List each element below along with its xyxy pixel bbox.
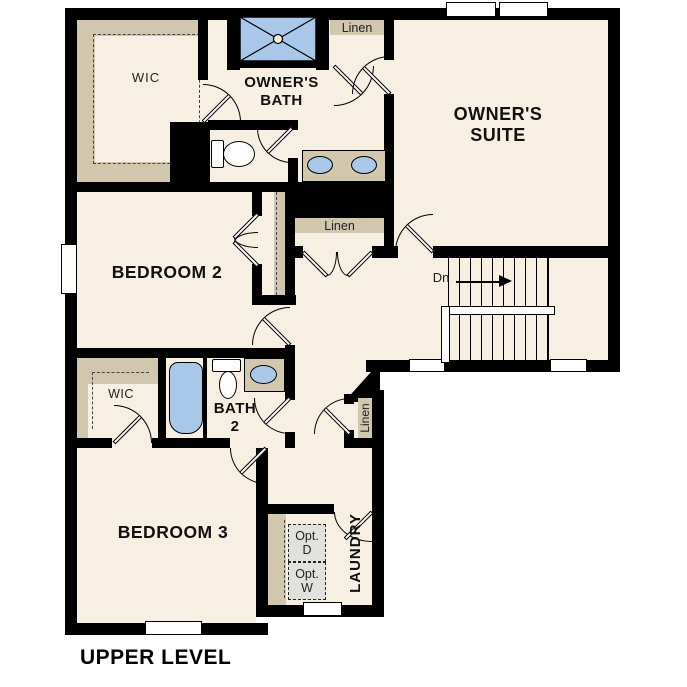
window-stair-1 — [409, 359, 445, 372]
wall-exterior-right-upper — [608, 8, 620, 372]
window-laundry — [303, 602, 342, 616]
vanity-bath2-sink — [250, 365, 277, 384]
stairs-railing-horizontal — [441, 306, 555, 315]
bath2-label: BATH 2 — [204, 400, 266, 435]
wall-wic-corner-mass — [170, 122, 210, 182]
stairs-down-arrow-line — [456, 281, 500, 283]
floor-plan: Dn Opt. D Opt. W — [0, 0, 687, 687]
toilet-owners-bowl — [223, 141, 255, 167]
wall-bath2-hall-b — [285, 432, 295, 448]
page-title: UPPER LEVEL — [80, 646, 231, 670]
window-owners-suite-2 — [499, 2, 548, 17]
owners-suite-label: OWNER'S SUITE — [428, 104, 568, 146]
wall-bath-hall-mass — [288, 182, 394, 218]
linen-hall-label: Linen — [295, 219, 384, 233]
laundry-shelf-line — [284, 520, 285, 598]
wall-b2closet-bottom — [252, 295, 296, 305]
window-bedroom2 — [61, 244, 77, 294]
shower — [239, 16, 317, 62]
wall-bath2-row-top — [65, 348, 295, 358]
wall-wic2-tub — [158, 348, 166, 448]
wall-b2closet-left-b — [252, 264, 262, 295]
wic-owners-label: WIC — [96, 71, 196, 86]
wall-bath2-row-bottom-a — [65, 438, 112, 448]
stairs-down-arrow-head — [499, 275, 512, 287]
bedroom3-label: BEDROOM 3 — [92, 522, 254, 543]
bathtub — [169, 362, 203, 434]
wall-bath2-hall-a — [285, 356, 295, 400]
wall-bath-row-bottom — [65, 182, 298, 192]
stairs-railing-vertical — [441, 306, 450, 363]
owners-bath-label: OWNER'S BATH — [224, 74, 339, 109]
wic-bath2-label: WIC — [92, 387, 150, 401]
dryer-optional: Opt. D — [288, 524, 326, 562]
wall-exterior-left — [65, 8, 77, 635]
window-owners-suite-1 — [446, 2, 496, 17]
stairs-lower-flight — [448, 315, 549, 363]
wall-wic-owners-right — [198, 20, 208, 80]
window-bedroom3 — [145, 621, 202, 635]
laundry-label: LAUNDRY — [341, 503, 371, 603]
bedroom2-label: BEDROOM 2 — [88, 262, 246, 283]
washer-optional: Opt. W — [288, 562, 326, 600]
wall-linen-top-right — [384, 8, 394, 60]
stairs-down-label: Dn — [428, 271, 454, 286]
linen-top-label: Linen — [330, 21, 384, 35]
vanity-owners-sink-right — [351, 156, 377, 174]
window-stair-2 — [550, 359, 587, 372]
wall-b2closet-right — [285, 182, 295, 305]
wall-linen-hall-stub-left — [285, 246, 303, 258]
linen-lower-label: Linen — [351, 386, 379, 450]
toilet-bath2-bowl — [219, 371, 237, 399]
wall-linen-hall-stub-right — [372, 246, 398, 258]
wall-laundry-top — [268, 504, 334, 514]
wic-bath2-shelf-left — [77, 358, 88, 438]
bedroom2-closet-rod-line — [276, 192, 277, 295]
vanity-owners-sink-left — [307, 156, 333, 174]
